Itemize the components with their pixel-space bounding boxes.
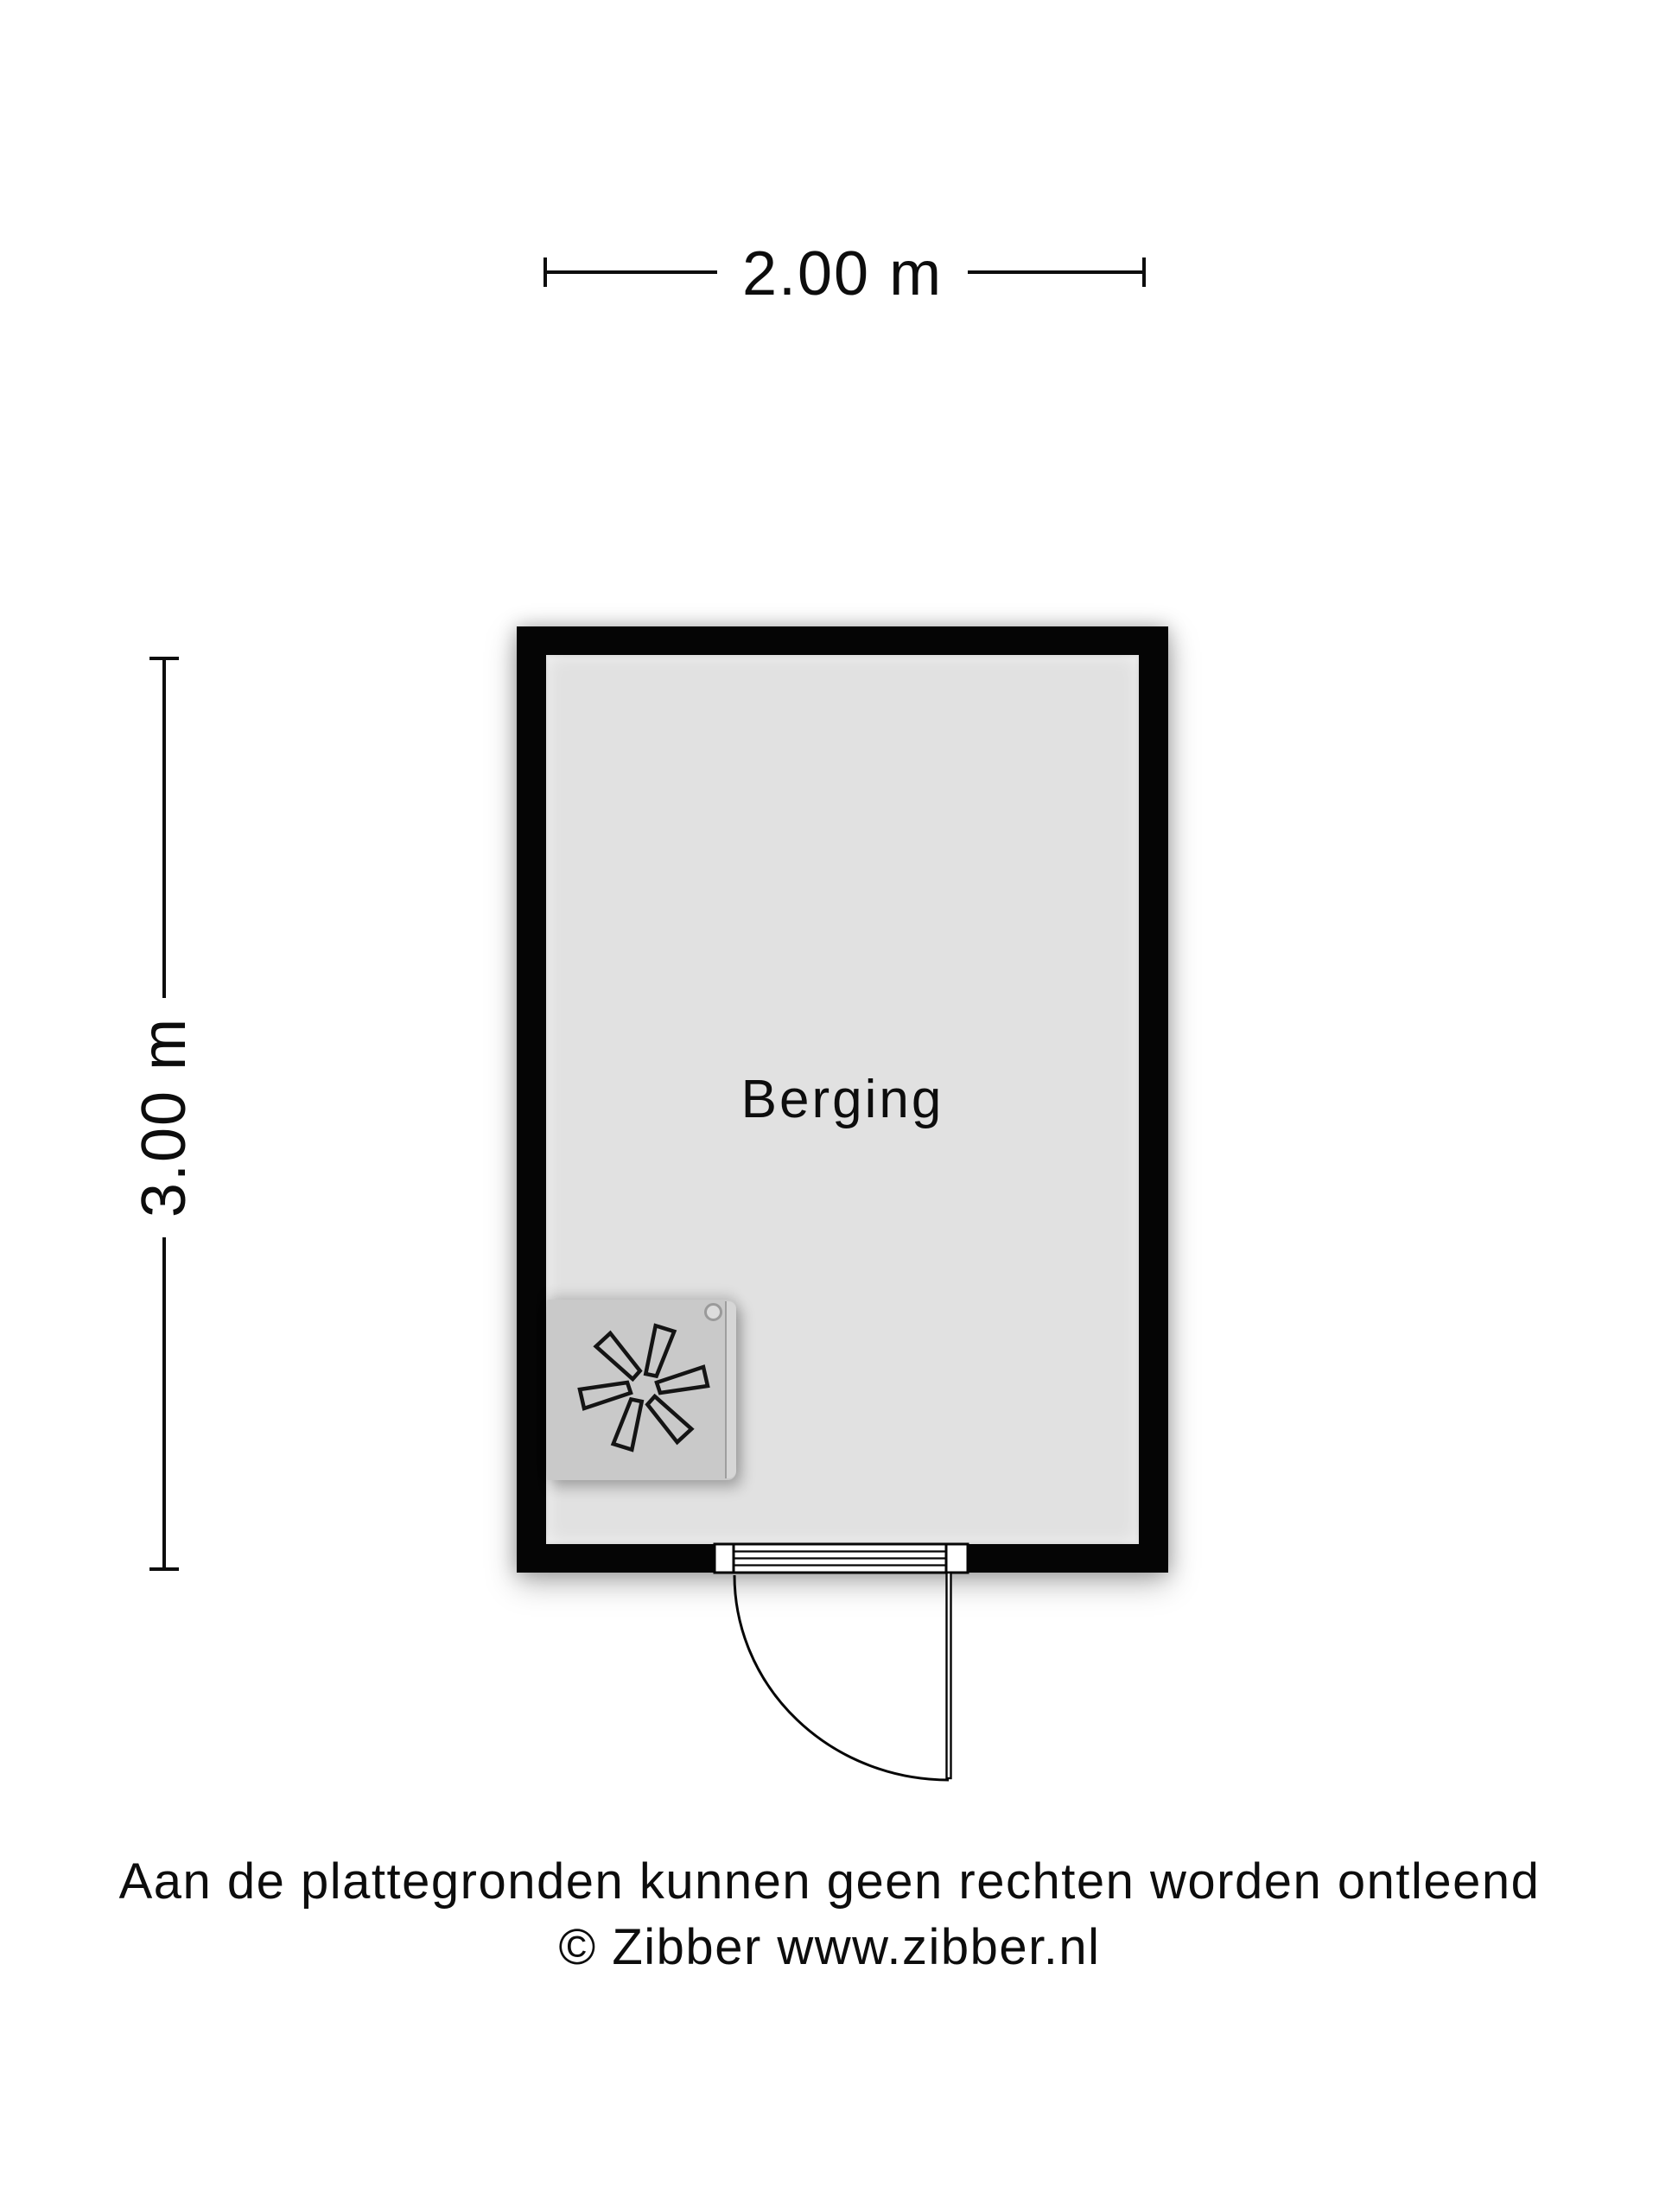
width-dim-line-right: [968, 270, 1145, 274]
disclaimer-line2: © Zibber www.zibber.nl: [0, 1915, 1659, 1980]
height-dim-line-top: [162, 658, 166, 998]
height-dim-tick-bottom: [149, 1567, 179, 1571]
width-dim-tick-right: [1142, 257, 1146, 287]
room-label: Berging: [517, 1069, 1168, 1130]
door-jamb-left: [715, 1544, 734, 1573]
ventilation-unit: [547, 1300, 736, 1480]
width-dim-line-left: [545, 270, 717, 274]
width-dim-label: 2.00 m: [709, 238, 976, 309]
door-swing: [517, 1538, 1168, 1806]
door-jamb-right: [946, 1544, 968, 1573]
door-leaf: [947, 1573, 951, 1778]
height-dim-label: 3.00 m: [95, 983, 233, 1251]
disclaimer-line1: Aan de plattegronden kunnen geen rechten…: [0, 1849, 1659, 1915]
ventilation-unit-lid: [725, 1301, 736, 1478]
disclaimer: Aan de plattegronden kunnen geen rechten…: [0, 1849, 1659, 1980]
room-berging: Berging: [517, 626, 1168, 1573]
fan-icon: [573, 1317, 715, 1459]
height-dim-line-bottom: [162, 1237, 166, 1570]
door-swing-arc: [734, 1575, 949, 1780]
